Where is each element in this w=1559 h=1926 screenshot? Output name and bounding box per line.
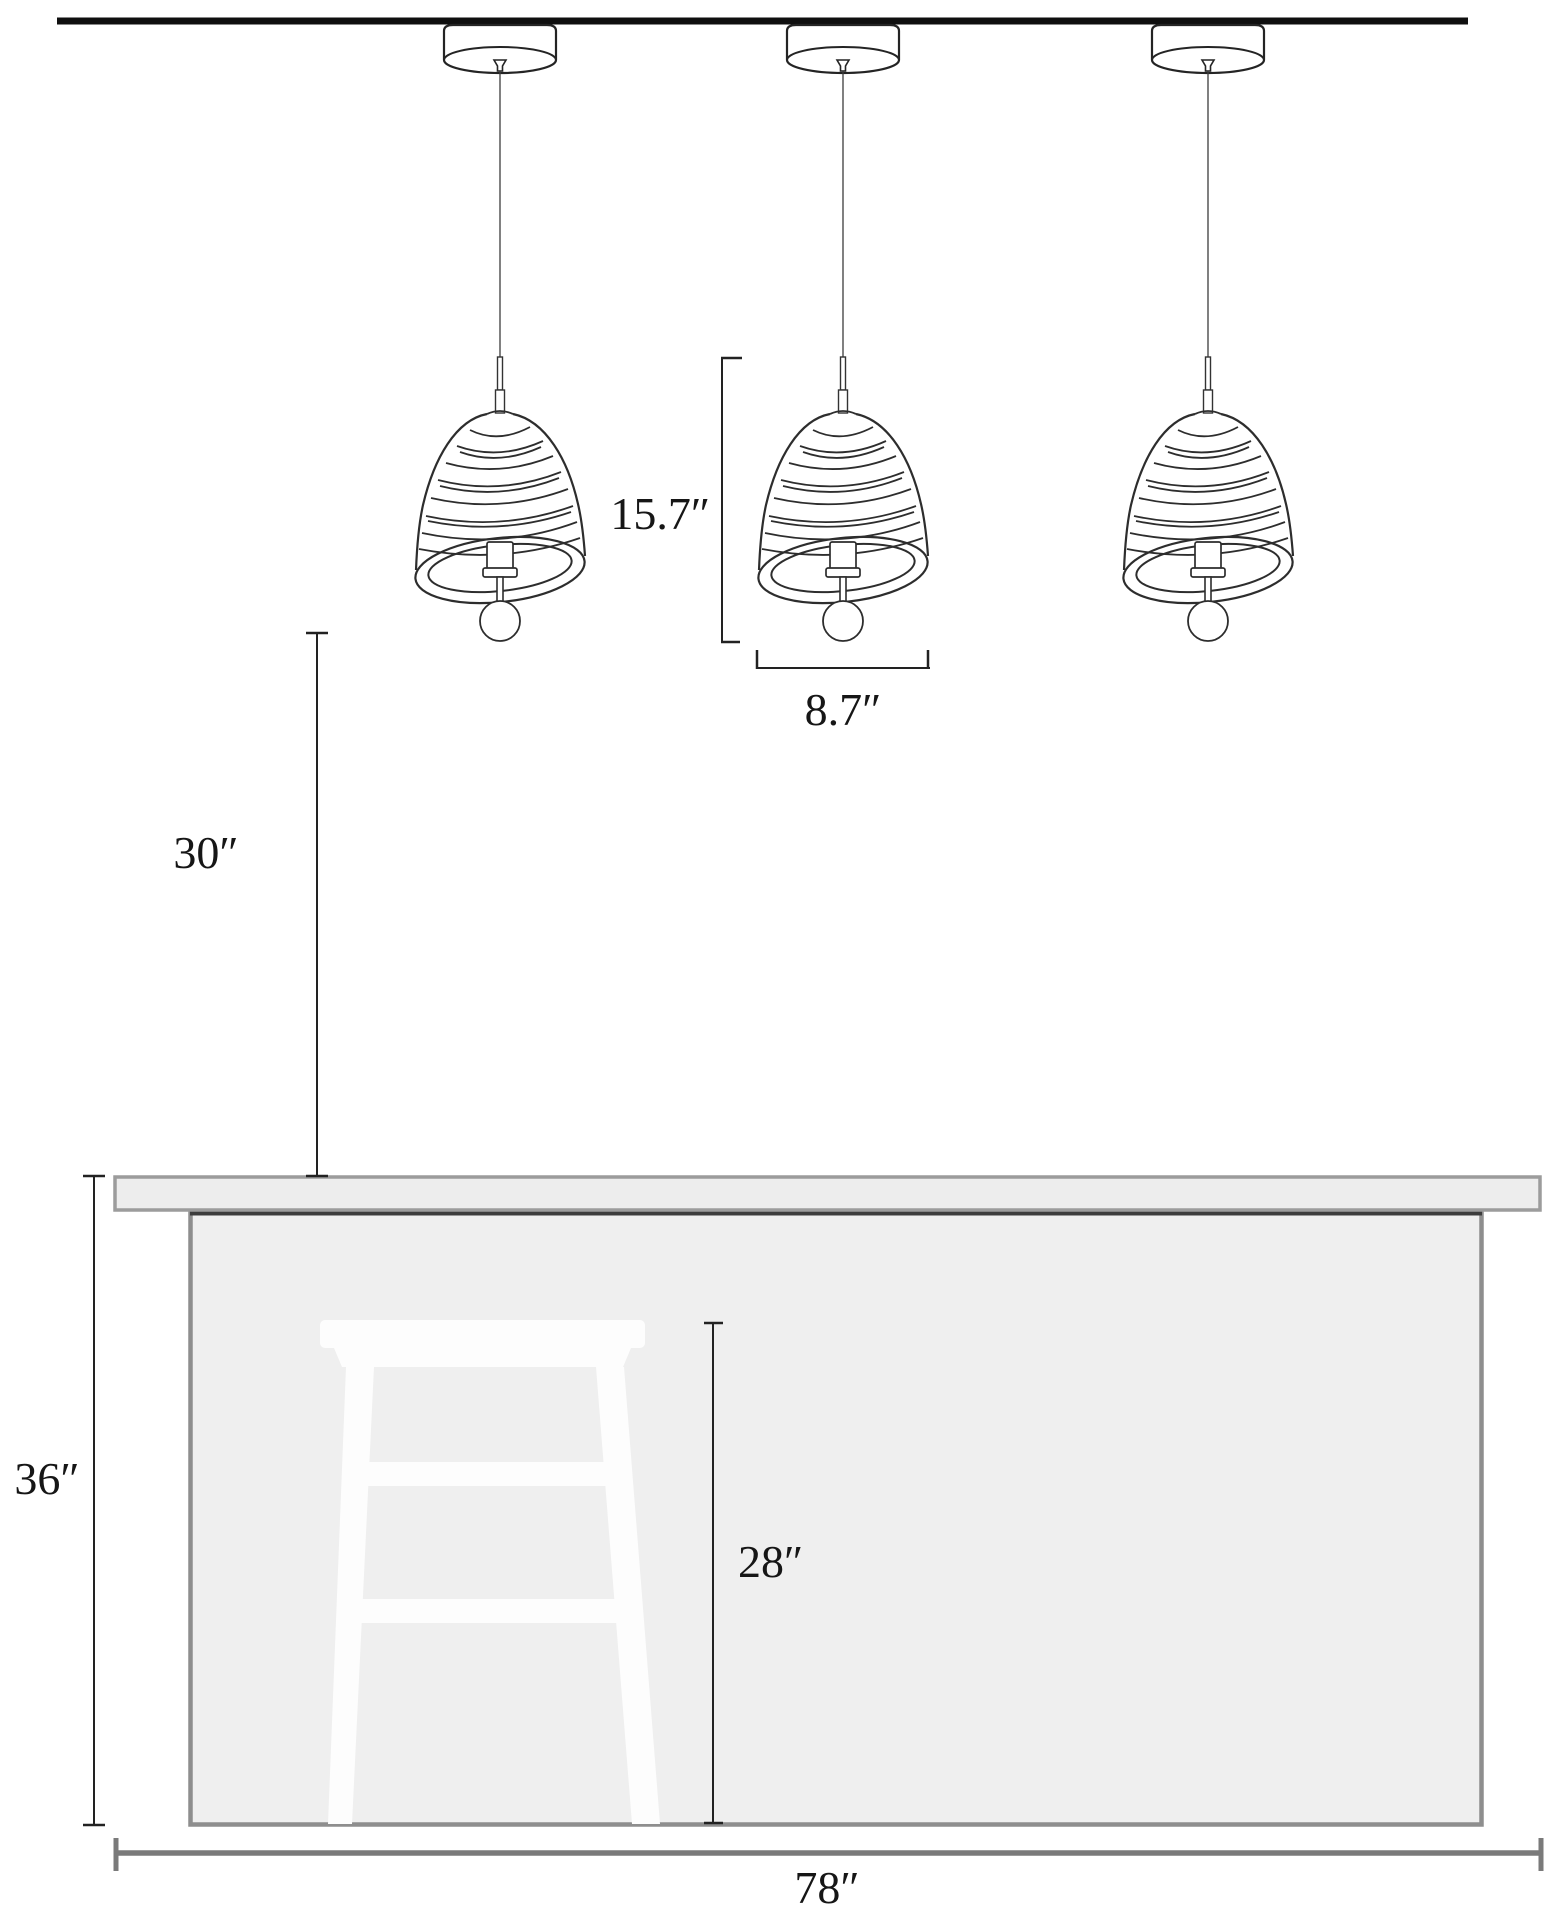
dimension-diagram: 15.7″ 8.7″ 30″ 36″ 28″ 78″ [0, 0, 1559, 1926]
dim-label-shade-width: 8.7″ [805, 687, 882, 733]
countertop [115, 1177, 1540, 1210]
island-base [191, 1209, 1482, 1825]
dim-label-island-width: 78″ [794, 1865, 859, 1911]
pendant-light-2 [755, 25, 931, 641]
dim-label-stool-height: 28″ [738, 1539, 803, 1585]
stool-seat [320, 1320, 645, 1348]
pendant-light-1 [412, 25, 588, 641]
stool-apron [334, 1348, 631, 1367]
dim-label-fixture-height: 15.7″ [555, 491, 710, 537]
stool-upper-stretcher [358, 1462, 618, 1486]
dim-line-shade-width [757, 650, 930, 669]
dim-line-counter-height [83, 1176, 105, 1825]
dim-line-fixture-height [721, 358, 742, 642]
stool-lower-stretcher [348, 1599, 644, 1623]
pendant-light-3 [1120, 25, 1296, 641]
dim-label-clearance: 30″ [173, 830, 238, 876]
dim-label-counter-height: 36″ [14, 1456, 79, 1502]
line-art [0, 0, 1559, 1926]
dim-line-clearance [306, 633, 328, 1176]
